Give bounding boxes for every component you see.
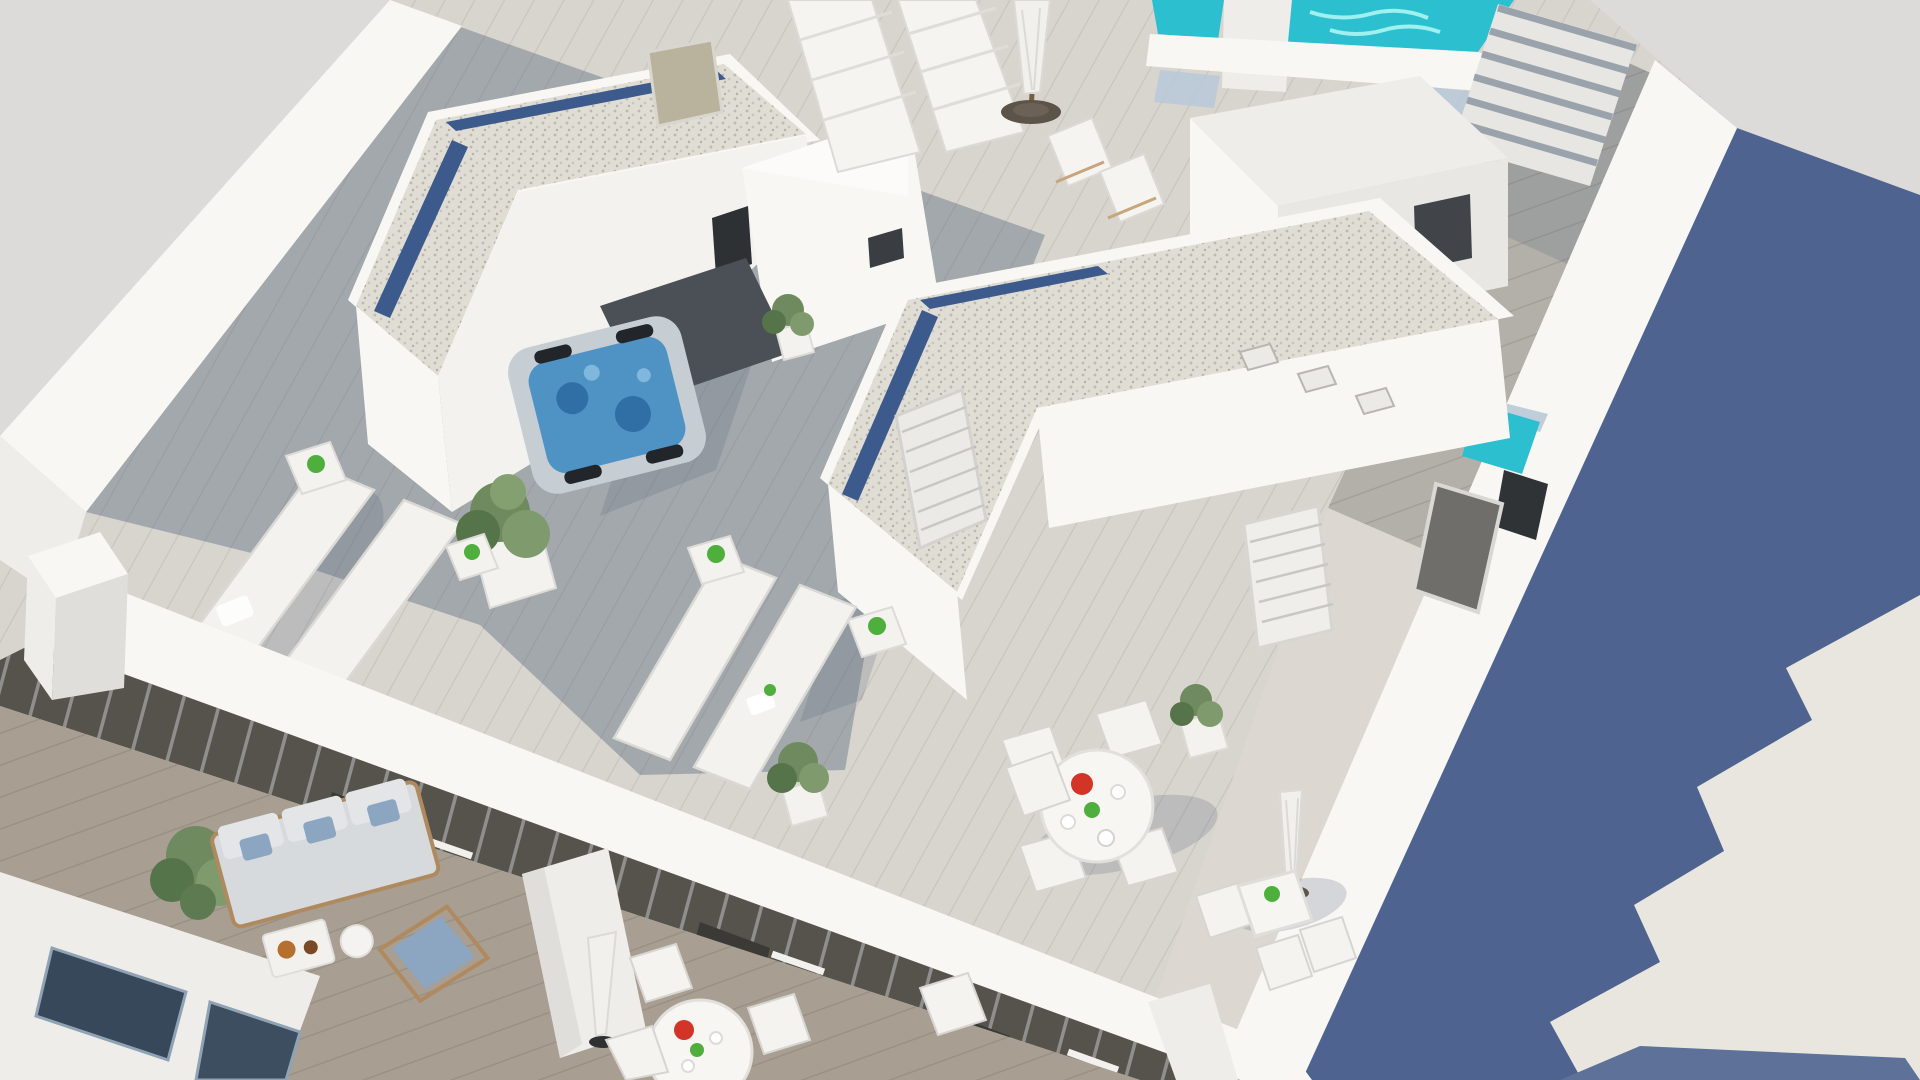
plate-white bbox=[1098, 830, 1114, 846]
pool-glass-panel-1 bbox=[1154, 70, 1220, 108]
table-plant-2 bbox=[464, 544, 480, 560]
table-plant-1 bbox=[307, 455, 325, 473]
cup-2 bbox=[1061, 815, 1075, 829]
balcony-cup-2 bbox=[682, 1060, 694, 1072]
balcony-cup-1 bbox=[710, 1032, 722, 1044]
render-canvas bbox=[0, 0, 1920, 1080]
green-bowl bbox=[1084, 802, 1100, 818]
parasol-base-top bbox=[1013, 103, 1049, 117]
roof-access-door bbox=[648, 40, 722, 126]
utility-box bbox=[24, 532, 128, 700]
louver-door-2 bbox=[1244, 506, 1333, 648]
balcony-red-plate bbox=[674, 1020, 694, 1040]
table-plant-4 bbox=[868, 617, 886, 635]
pool-water-left bbox=[1152, 0, 1224, 40]
cup-1 bbox=[1111, 785, 1125, 799]
rooftop-render bbox=[0, 0, 1920, 1080]
bistro-plant bbox=[1264, 886, 1280, 902]
table-plant-3 bbox=[707, 545, 725, 563]
red-plate bbox=[1071, 773, 1093, 795]
cup-green bbox=[764, 684, 776, 696]
balcony-green-bowl bbox=[690, 1043, 704, 1057]
